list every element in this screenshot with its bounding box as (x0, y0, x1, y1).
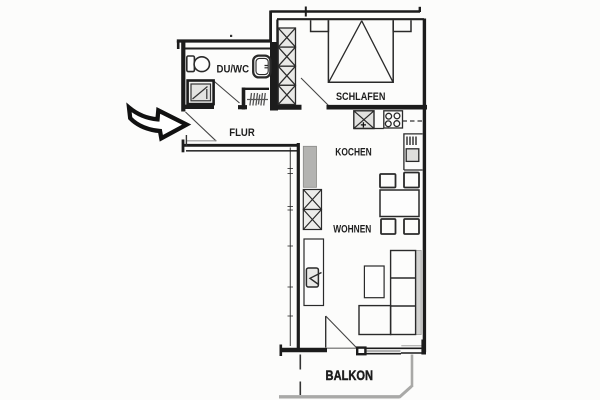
svg-text:DU/WC: DU/WC (217, 64, 250, 76)
svg-text:SCHLAFEN: SCHLAFEN (336, 91, 386, 103)
svg-text:WOHNEN: WOHNEN (333, 224, 371, 236)
svg-text:KOCHEN: KOCHEN (335, 147, 372, 159)
svg-text:FLUR: FLUR (229, 127, 255, 139)
svg-text:BALKON: BALKON (326, 368, 374, 383)
